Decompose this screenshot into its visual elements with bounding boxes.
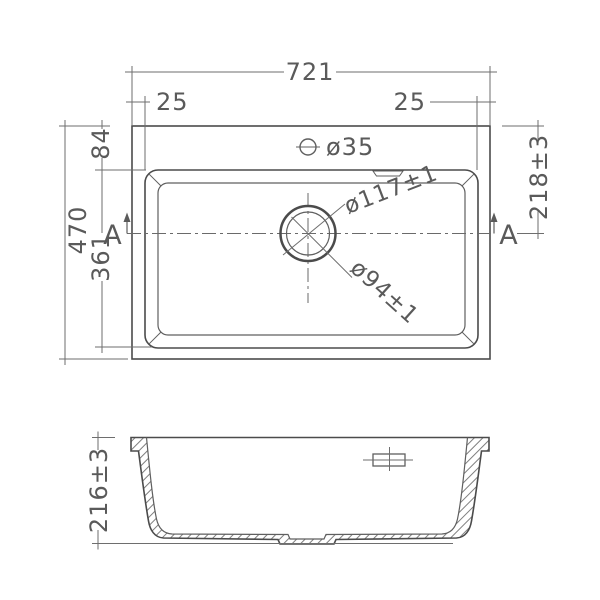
section-inner-profile <box>147 438 468 540</box>
bowl-corner-diagonal-br <box>462 332 474 344</box>
section-view: 216±3 <box>85 432 489 550</box>
section-letter-right: A <box>499 220 518 251</box>
section-tap-knockout <box>363 447 413 471</box>
bowl-corner-diagonal-tl <box>149 174 161 186</box>
top-view: ø35 ø117±1 ø94±1 A A <box>59 58 553 365</box>
dim-25-right-label: 25 <box>393 88 426 116</box>
bowl-corner-diagonal-bl <box>149 332 161 344</box>
bowl-corner-diagonal-tr <box>462 174 474 186</box>
dim-25-left-label: 25 <box>156 88 189 116</box>
section-marker-right: A <box>491 213 519 252</box>
section-outer-profile <box>131 438 489 545</box>
sink-outer-outline <box>132 126 490 359</box>
bowl-outer-edge <box>145 170 478 348</box>
dim-offset-right: 25 <box>393 88 496 170</box>
section-arrow-icon-right <box>491 213 498 223</box>
dim-216-label: 216±3 <box>85 447 113 533</box>
dim-218-label: 218±3 <box>525 134 553 220</box>
section-material-hatch <box>131 438 489 545</box>
dim-offset-left: 25 <box>126 88 189 170</box>
section-arrow-icon-left <box>124 213 131 223</box>
drain-outer-diameter-label: ø117±1 <box>341 160 442 219</box>
drain-inner-diameter-label: ø94±1 <box>345 255 424 329</box>
dim-84-label: 84 <box>87 127 115 160</box>
tap-hole-symbol: ø35 <box>296 133 374 161</box>
drain-inner-diameter-line <box>292 217 353 278</box>
drain: ø117±1 ø94±1 <box>281 160 442 329</box>
dim-361-label: 361 <box>87 233 115 282</box>
dim-721-label: 721 <box>286 58 335 86</box>
sink-technical-drawing: ø35 ø117±1 ø94±1 A A <box>0 0 600 600</box>
drawing-sheet: ø35 ø117±1 ø94±1 A A <box>0 0 600 600</box>
tap-hole-label: ø35 <box>326 133 374 161</box>
